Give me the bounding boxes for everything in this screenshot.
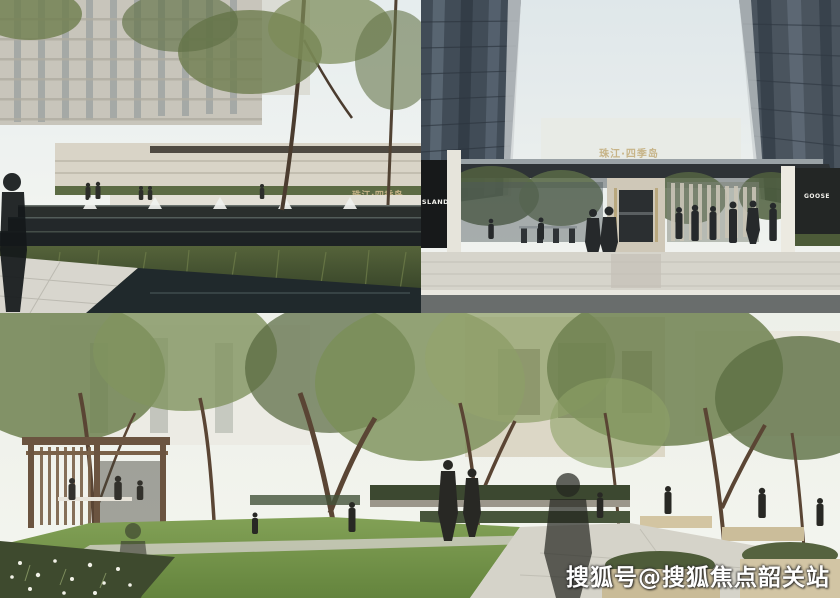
panel-waterscape-rendering: 珠江·四季岛: [0, 0, 421, 313]
sohu-watermark: 搜狐号@搜狐焦点韶关站: [566, 558, 830, 592]
panel-entrance-rendering: 珠江·四季岛: [421, 0, 840, 313]
goose-storefront: GOOSE: [781, 166, 840, 258]
render-collage: 珠江·四季岛: [0, 0, 840, 598]
forecourt-paving: [421, 252, 840, 313]
water-reflection: [150, 292, 410, 294]
island-sign-text: ISLAND: [421, 198, 449, 206]
goose-sign-text: GOOSE: [804, 193, 830, 200]
road-strip: [421, 295, 840, 313]
panel-garden-rendering: [0, 313, 840, 598]
island-monolith-sign: ISLAND: [421, 150, 461, 254]
gate-roof-project-sign: 珠江·四季岛: [599, 147, 659, 160]
clubhouse-wall: [55, 143, 421, 195]
